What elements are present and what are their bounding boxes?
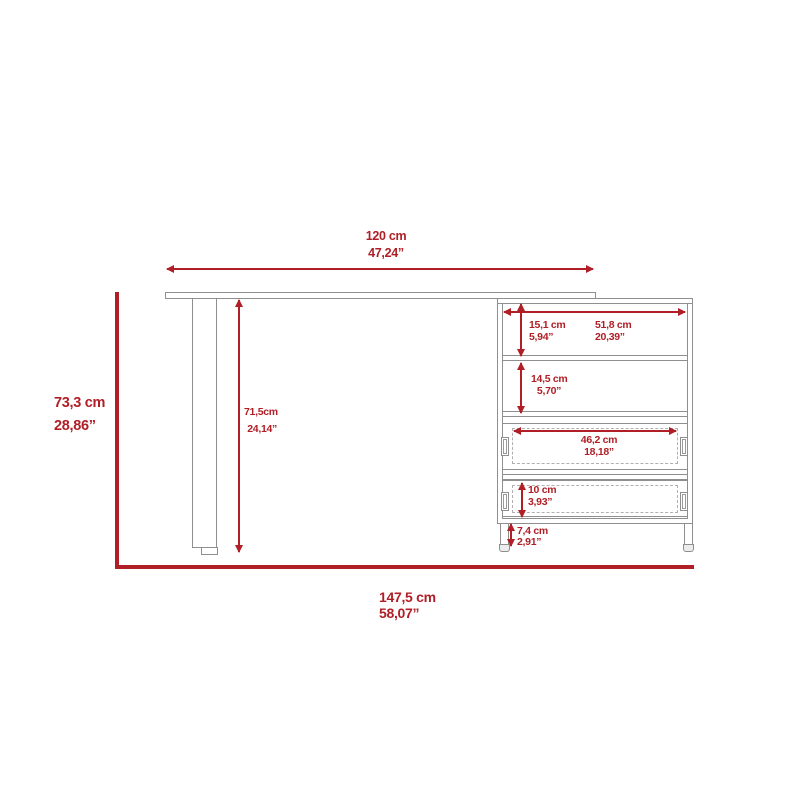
drawer-handle: [680, 437, 688, 456]
desk-dimension-diagram: 120 cm 47,24” 73,3 cm 28,86” 71,5cm 24,1…: [0, 0, 800, 800]
dimension-in: 2,91”: [517, 537, 548, 548]
dimension-cm: 15,1 cm: [529, 319, 565, 331]
cabinet-top-inner-line: [498, 303, 692, 304]
dimension-cm: 51,8 cm: [595, 319, 631, 331]
arrow-leg-height: [238, 300, 240, 552]
dimension-in: 18,18”: [570, 446, 628, 458]
arrow-drawer-width: [514, 430, 676, 432]
dimension-in: 5,94”: [529, 331, 565, 343]
dimension-label-top-shelf-height: 15,1 cm 5,94”: [529, 319, 565, 343]
cabinet-foot: [683, 544, 694, 552]
dimension-label-shelf-width: 51,8 cm 20,39”: [595, 319, 631, 343]
dimension-in: 58,07”: [379, 605, 436, 621]
desk-leg: [192, 298, 217, 548]
dimension-cm: 71,5cm: [244, 404, 277, 421]
dimension-label-desk-top-width: 120 cm 47,24”: [336, 228, 436, 262]
arrow-shelf-width: [504, 311, 685, 313]
shelf-line: [502, 416, 687, 417]
desk-foot: [201, 547, 218, 555]
shelf-line: [502, 360, 687, 361]
arrow-desk-top-width: [167, 268, 593, 270]
dimension-cm: 147,5 cm: [379, 589, 436, 605]
dimension-cm: 120 cm: [336, 228, 436, 245]
dimension-label-drawer-height: 10 cm 3,93”: [528, 484, 556, 508]
dimension-label-middle-shelf-height: 14,5 cm 5,70”: [531, 373, 567, 397]
overall-width-line: [115, 565, 694, 569]
shelf-line: [502, 355, 687, 356]
drawer-divider-line: [502, 474, 687, 475]
dimension-cm: 73,3 cm: [54, 392, 105, 415]
drawer-handle: [501, 492, 509, 511]
dimension-label-overall-width: 147,5 cm 58,07”: [379, 589, 436, 621]
dimension-label-leg-height: 71,5cm 24,14”: [244, 404, 277, 438]
dimension-label-drawer-width: 46,2 cm 18,18”: [570, 434, 628, 458]
dimension-in: 28,86”: [54, 415, 105, 438]
dimension-in: 20,39”: [595, 331, 631, 343]
dimension-in: 47,24”: [336, 245, 436, 262]
drawer-handle: [501, 437, 509, 456]
dimension-cm: 10 cm: [528, 484, 556, 496]
dimension-label-overall-height: 73,3 cm 28,86”: [54, 392, 105, 438]
arrow-drawer-height: [521, 483, 523, 517]
overall-height-line: [115, 292, 119, 569]
dimension-label-foot-height: 7,4 cm 2,91”: [517, 526, 548, 548]
arrow-foot-height: [510, 524, 512, 546]
arrow-middle-shelf-height: [520, 363, 522, 413]
shelf-line: [502, 411, 687, 412]
dimension-in: 3,93”: [528, 496, 556, 508]
cabinet-bottom-inner-line: [502, 518, 687, 519]
cabinet-leg: [684, 523, 693, 546]
dimension-cm: 14,5 cm: [531, 373, 567, 385]
arrow-top-shelf-height: [520, 304, 522, 356]
dimension-in: 24,14”: [244, 421, 277, 438]
drawer-handle: [680, 492, 688, 511]
dimension-cm: 46,2 cm: [570, 434, 628, 446]
dimension-in: 5,70”: [531, 385, 567, 397]
